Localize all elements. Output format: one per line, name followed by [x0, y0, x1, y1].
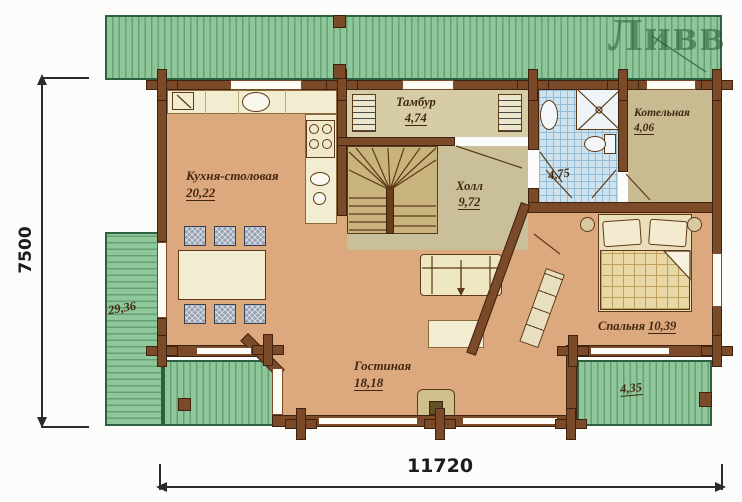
room-label-living: Гостиная 18,18 [354, 358, 411, 392]
room-label-boiler: Котельная 4,06 [634, 106, 690, 136]
dining-chair [214, 304, 236, 324]
terrace-post [178, 398, 191, 411]
log-joint [701, 69, 733, 101]
room-label-terrace-right: 4,35 [619, 379, 642, 397]
dimension-arrow [156, 482, 167, 492]
window [646, 80, 696, 90]
log-joint [424, 408, 456, 440]
room-area: 9,72 [458, 195, 480, 210]
room-label-bedroom: Спальня 10,39 [598, 318, 676, 334]
room-area: 10,39 [648, 319, 676, 334]
room-area: 20,22 [186, 185, 215, 201]
dimension-tick [43, 426, 89, 428]
bed-blanket [600, 250, 690, 310]
stove-burner-icon [309, 139, 319, 149]
room-area: 4,75 [547, 166, 571, 183]
dimension-tick [43, 77, 89, 79]
kitchen-sink-icon [242, 92, 270, 112]
dimension-width: 11720 [395, 455, 485, 477]
toilet-bowl-icon [584, 136, 606, 152]
terrace-left [105, 232, 163, 426]
room-area: 4,74 [405, 111, 427, 126]
log-joint [555, 408, 587, 440]
log-joint [252, 334, 284, 366]
wall-segment [157, 80, 167, 242]
dining-chair [244, 226, 266, 246]
room-name: Гостиная [354, 358, 411, 373]
terrace-right [577, 360, 712, 426]
dimension-line-left [41, 78, 43, 428]
watermark: Ливв [608, 8, 742, 68]
wall-segment [528, 202, 722, 213]
nightstand-icon [580, 217, 595, 232]
terrace-bottom [163, 360, 283, 426]
stair-newel [386, 186, 394, 234]
room-name: Холл [456, 179, 483, 193]
stove-burner-icon [309, 124, 319, 134]
wall-segment [337, 137, 455, 146]
window [196, 347, 252, 355]
dining-table [178, 250, 266, 300]
room-area: 4,06 [634, 122, 654, 135]
window [318, 417, 418, 425]
veranda-post [333, 15, 346, 28]
pillow-icon [648, 219, 688, 248]
log-joint [607, 69, 639, 101]
room-label-bathroom: 4,75 [547, 165, 571, 184]
room-name: Котельная [634, 107, 690, 119]
veranda-post [333, 64, 346, 79]
log-joint [146, 69, 178, 101]
stove-burner-icon [322, 139, 332, 149]
log-joint [701, 335, 733, 367]
prep-sink-icon [313, 192, 326, 205]
room-label-kitchen: Кухня-столовая 20,22 [186, 168, 279, 202]
terrace-post [699, 392, 712, 407]
entry-door-opening [402, 80, 454, 90]
room-name: Тамбур [396, 95, 436, 109]
floor-plan: Кухня-столовая 20,22 Тамбур 4,74 Холл 9,… [0, 0, 742, 502]
bath-sink-icon [540, 100, 558, 130]
window [157, 242, 167, 318]
wall-segment [337, 91, 347, 216]
room-label-hall: Холл 9,72 [456, 178, 483, 211]
window [590, 347, 670, 355]
stove-burner-icon [322, 124, 332, 134]
dimension-tick [159, 464, 161, 490]
dimension-tick [721, 464, 723, 490]
room-name: Спальня [598, 319, 645, 333]
room-area: 4,35 [619, 380, 642, 397]
log-joint [146, 335, 178, 367]
dining-chair [214, 226, 236, 246]
dimension-line-bottom [160, 486, 722, 488]
dining-chair [244, 304, 266, 324]
counter-seam [238, 90, 239, 114]
dimension-arrow [37, 74, 47, 85]
log-joint [557, 335, 589, 367]
room-area: 18,18 [354, 375, 383, 391]
window [712, 253, 722, 307]
window [462, 417, 558, 425]
room-label-vestibule: Тамбур 4,74 [396, 94, 436, 127]
dining-chair [184, 304, 206, 324]
log-joint [517, 69, 549, 101]
log-joint [285, 408, 317, 440]
pillow-icon [602, 219, 642, 248]
nightstand-icon [687, 217, 702, 232]
window [272, 368, 283, 415]
prep-sink-icon [310, 172, 330, 186]
dining-chair [184, 226, 206, 246]
window [230, 80, 302, 90]
dimension-height: 7500 [16, 220, 36, 280]
counter-seam [285, 90, 286, 114]
wall-segment [712, 80, 722, 357]
room-name: Кухня-столовая [186, 168, 279, 183]
counter-seam [205, 90, 206, 114]
